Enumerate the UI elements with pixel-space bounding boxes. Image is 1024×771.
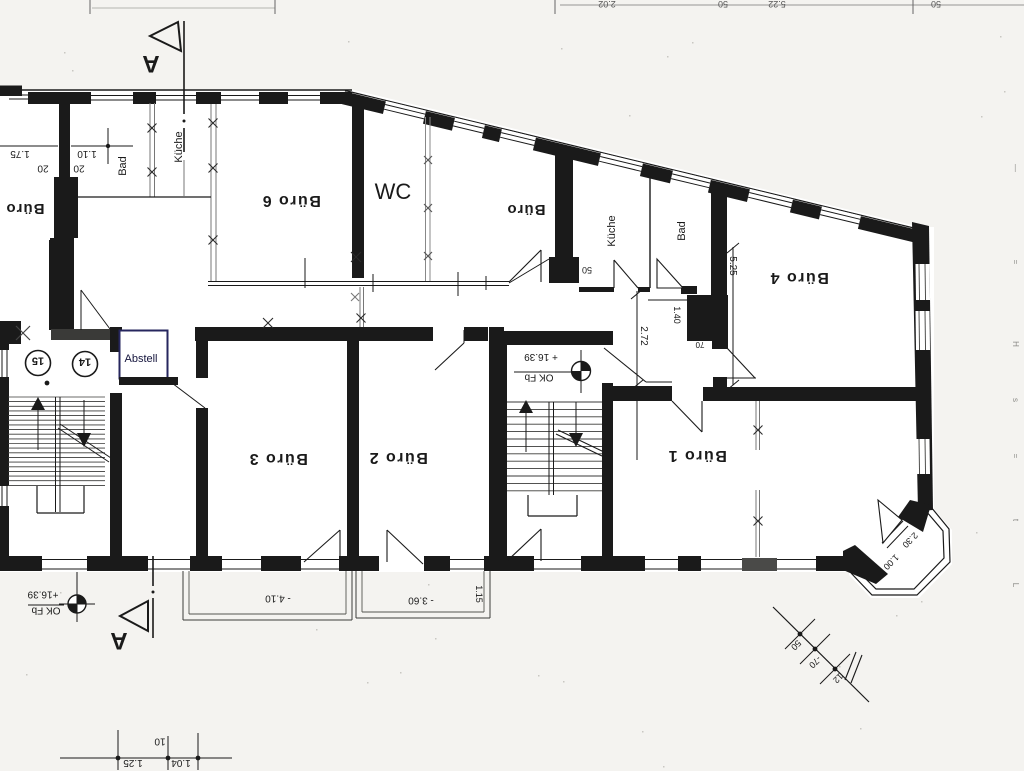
svg-text:14: 14 [78, 356, 91, 368]
svg-text:1.04: 1.04 [171, 757, 191, 768]
svg-text:=: = [1011, 454, 1020, 459]
svg-text:20: 20 [37, 163, 49, 174]
svg-text:Büro 1: Büro 1 [667, 447, 727, 464]
svg-text:OK Fb: OK Fb [31, 605, 60, 616]
svg-text:A: A [142, 50, 159, 77]
svg-text:5.25: 5.25 [727, 256, 738, 276]
svg-text:20: 20 [73, 163, 85, 174]
svg-text:1.75: 1.75 [10, 148, 30, 159]
svg-text:OK Fb: OK Fb [524, 372, 553, 383]
svg-text:L: L [1011, 583, 1020, 588]
svg-text:15: 15 [32, 355, 44, 367]
svg-text:50: 50 [582, 265, 592, 275]
svg-text:Büro 3: Büro 3 [248, 450, 308, 467]
svg-text:1.15: 1.15 [474, 585, 484, 603]
svg-text:s: s [1011, 398, 1020, 402]
svg-text:Büro 6: Büro 6 [261, 192, 321, 209]
svg-text:Büro 4: Büro 4 [769, 269, 829, 286]
svg-text:Büro: Büro [507, 201, 546, 218]
svg-text:Bad: Bad [117, 156, 129, 176]
svg-text:2.72: 2.72 [638, 326, 649, 346]
svg-text:5.22: 5.22 [768, 0, 786, 9]
svg-text:+ 16.39: + 16.39 [524, 351, 558, 362]
svg-text:+16.39: +16.39 [27, 589, 58, 600]
svg-text:—: — [1011, 164, 1020, 172]
svg-text:50: 50 [718, 0, 728, 9]
svg-text:1.10: 1.10 [77, 148, 97, 159]
svg-text:WC: WC [375, 179, 412, 204]
svg-text:=: = [1011, 260, 1020, 265]
svg-text:H: H [1011, 341, 1020, 347]
svg-text:50: 50 [931, 0, 941, 9]
svg-text:70: 70 [695, 340, 704, 349]
svg-text:Bad: Bad [676, 221, 688, 241]
svg-text:- 3.60: - 3.60 [408, 595, 434, 606]
svg-text:10: 10 [154, 736, 166, 747]
svg-text:Abstell: Abstell [124, 353, 157, 365]
svg-text:1.40: 1.40 [672, 306, 682, 324]
svg-text:1.25: 1.25 [123, 757, 143, 768]
svg-text:- 4.10: - 4.10 [265, 593, 291, 604]
svg-text:Büro: Büro [6, 200, 45, 217]
svg-text:A: A [110, 627, 127, 654]
svg-text:Büro 2: Büro 2 [368, 449, 428, 466]
svg-text:2.02: 2.02 [598, 0, 616, 9]
svg-text:Küche: Küche [606, 215, 618, 246]
